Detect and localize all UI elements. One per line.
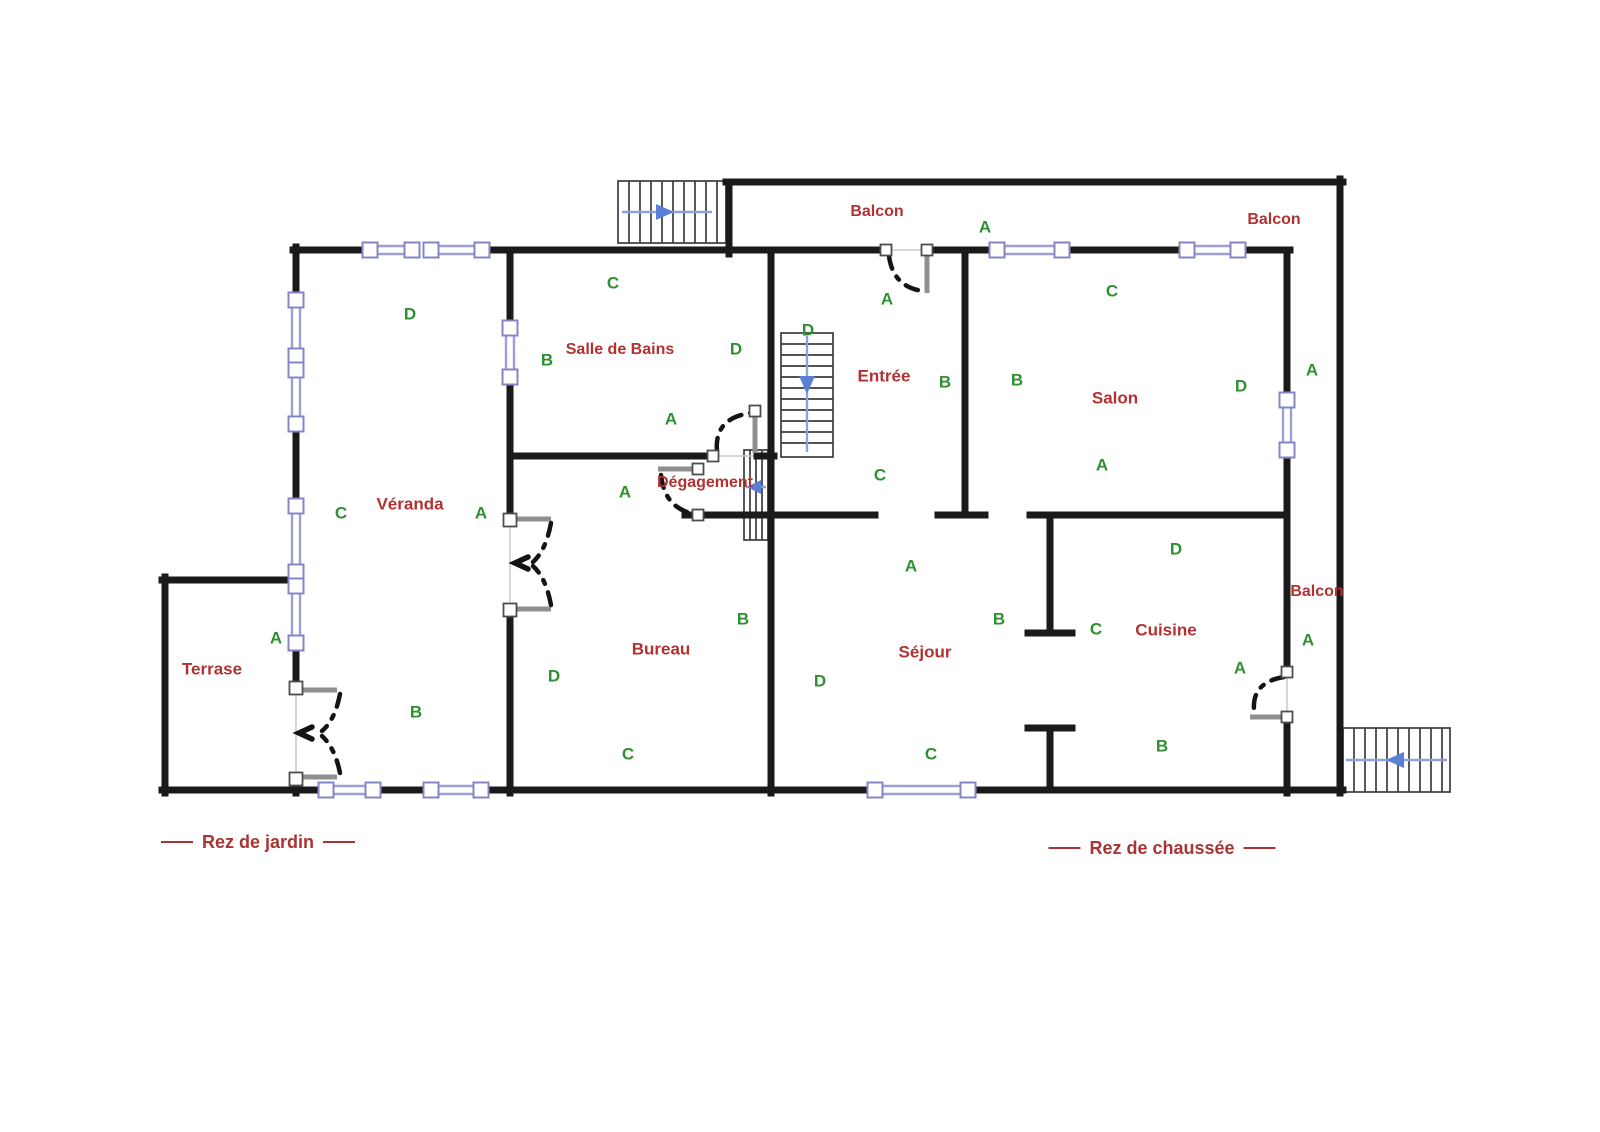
door-swing-arc [322,736,340,773]
dash-decoration [1048,847,1080,849]
letter-sdb-a: A [665,411,677,428]
letter-cuisine-c: C [1090,621,1102,638]
double-door-mark [515,557,528,569]
letter-sejour-a: A [905,558,917,575]
letter-salon-b: B [1011,372,1023,389]
room-label-bureau: Bureau [632,641,691,658]
staircase-entree [781,333,833,457]
letter-cuisine-d: D [1170,541,1182,558]
floorplan-page: Terrase Véranda Salle de Bains Dégagemen… [0,0,1600,1132]
double-door-mark [299,727,312,739]
room-label-entree: Entrée [858,368,911,385]
letter-entree-d: D [802,322,814,339]
letter-degagement-a: A [619,484,631,501]
letter-bureau-d: D [548,668,560,685]
letter-sdb-d: D [730,341,742,358]
letter-balcon-top-a: A [979,219,991,236]
letter-sejour-c: C [925,746,937,763]
letter-veranda-b: B [410,704,422,721]
letter-bureau-b: B [737,611,749,628]
door-swing-arc [533,566,551,605]
letter-sejour-d: D [814,673,826,690]
letter-veranda-a: A [475,505,487,522]
letter-cuisine-b: B [1156,738,1168,755]
staircase-top [618,181,726,243]
letter-sejour-b: B [993,611,1005,628]
room-label-cuisine: Cuisine [1135,622,1196,639]
letter-balcon-right-a-mid: A [1302,632,1314,649]
floor-label-text: Rez de jardin [202,833,314,851]
room-label-sejour: Séjour [899,644,952,661]
dash-decoration [1244,847,1276,849]
letter-salon-a: A [1096,457,1108,474]
letter-salon-d: D [1235,378,1247,395]
floor-label-rez-de-chaussee: Rez de chaussée [1048,839,1275,857]
letter-terrase-a: A [270,630,282,647]
balcony-label-top-right: Balcon [1247,212,1300,228]
door-swing-arc [322,694,340,731]
room-label-veranda: Véranda [376,496,443,513]
floor-label-text: Rez de chaussée [1089,839,1234,857]
staircase-bottom-right [1343,728,1450,792]
dash-decoration [323,841,355,843]
balcony-label-top: Balcon [850,204,903,220]
room-label-salle-de-bains: Salle de Bains [566,342,675,358]
room-label-salon: Salon [1092,390,1138,407]
door-swing-arc [889,256,923,291]
room-label-degagement: Dégagement [657,475,753,491]
letter-cuisine-a: A [1234,660,1246,677]
letter-veranda-d: D [404,306,416,323]
letter-sdb-c: C [607,275,619,292]
window-frame-squares [289,243,1295,798]
letter-entree-a: A [881,291,893,308]
windows [289,243,1295,798]
letter-bureau-c: C [622,746,634,763]
floor-label-rez-de-jardin: Rez de jardin [161,833,355,851]
door-swing-arc [1254,677,1284,710]
letter-veranda-c: C [335,505,347,522]
staircase-degagement [744,450,768,540]
letter-entree-c: C [874,467,886,484]
balcony-label-right: Balcon [1290,584,1343,600]
door-swing-arc [717,413,751,451]
letter-sdb-b: B [541,352,553,369]
door-swing-arc [533,523,551,562]
letter-balcon-right-a-upper: A [1306,362,1318,379]
letter-salon-c: C [1106,283,1118,300]
letter-entree-b: B [939,374,951,391]
floorplan-drawing [0,0,1600,1132]
room-label-terrase: Terrase [182,661,242,678]
dash-decoration [161,841,193,843]
